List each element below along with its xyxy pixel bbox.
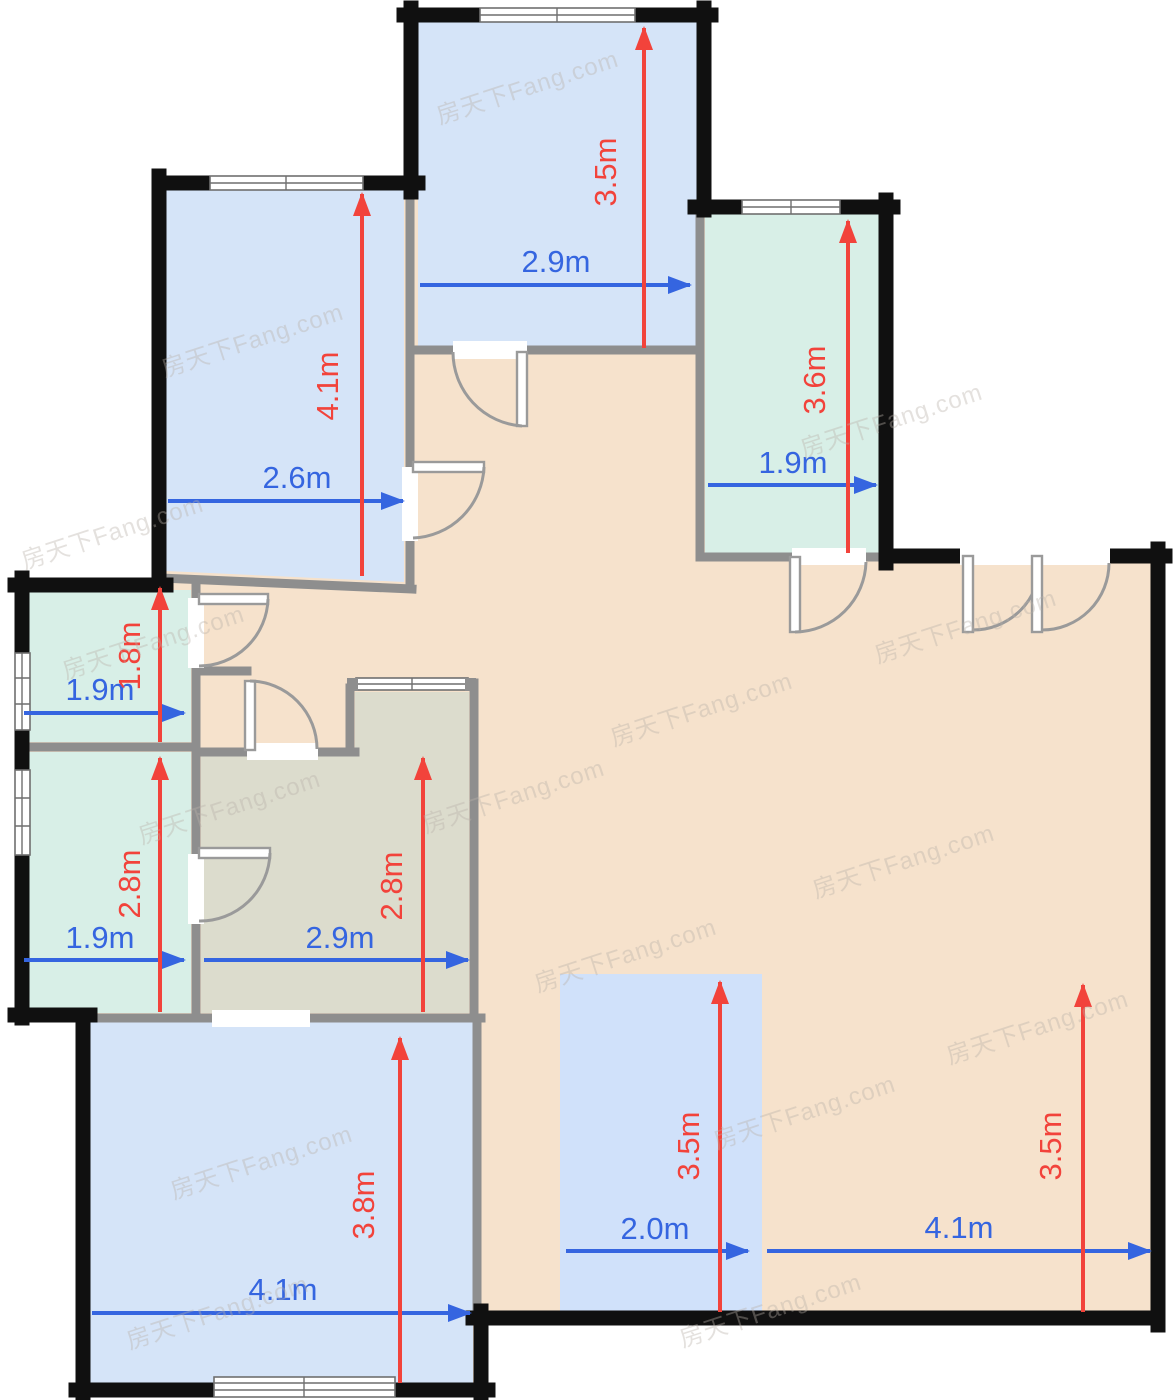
dim-label-room-mid-left-large-width: 1.9m — [66, 920, 135, 955]
floor-plan-page: 2.9m 2.6m 1.9m 1.9m 1.9m 2.9m 4.1m 2.0m … — [0, 0, 1173, 1400]
room-top-right-fill — [705, 214, 879, 553]
dim-label-kitchen-depth: 2.8m — [374, 852, 409, 921]
dim-label-bedroom-top-left-width: 2.6m — [263, 460, 332, 495]
dim-label-kitchen-width: 2.9m — [306, 920, 375, 955]
window-bottom — [214, 1377, 395, 1397]
dim-label-dining-strip-depth: 3.5m — [671, 1112, 706, 1181]
dim-label-dining-strip-width: 2.0m — [621, 1211, 690, 1246]
dim-label-bedroom-bottom-left-depth: 3.8m — [346, 1171, 381, 1240]
window-top-center — [480, 8, 635, 22]
dim-label-living-hall-width: 4.1m — [925, 1210, 994, 1245]
dim-label-room-mid-left-large-depth: 2.8m — [112, 850, 147, 919]
dim-label-room-top-right-depth: 3.6m — [797, 346, 832, 415]
dim-label-bedroom-top-left-depth: 4.1m — [310, 352, 345, 421]
window-top-left — [210, 176, 363, 190]
dim-label-bedroom-top-center-depth: 3.5m — [588, 138, 623, 207]
dim-label-living-hall-depth: 3.5m — [1033, 1112, 1068, 1181]
window-top-right — [742, 200, 840, 214]
window-kitchen-alcove — [347, 678, 476, 691]
window-left-lower — [15, 770, 30, 855]
floor-plan: 2.9m 2.6m 1.9m 1.9m 1.9m 2.9m 4.1m 2.0m … — [0, 0, 1173, 1400]
bedroom-top-left-fill — [166, 190, 404, 582]
dim-label-bedroom-top-center-width: 2.9m — [522, 244, 591, 279]
room-mid-left-large-fill — [29, 752, 191, 1013]
window-left-upper — [15, 653, 30, 730]
